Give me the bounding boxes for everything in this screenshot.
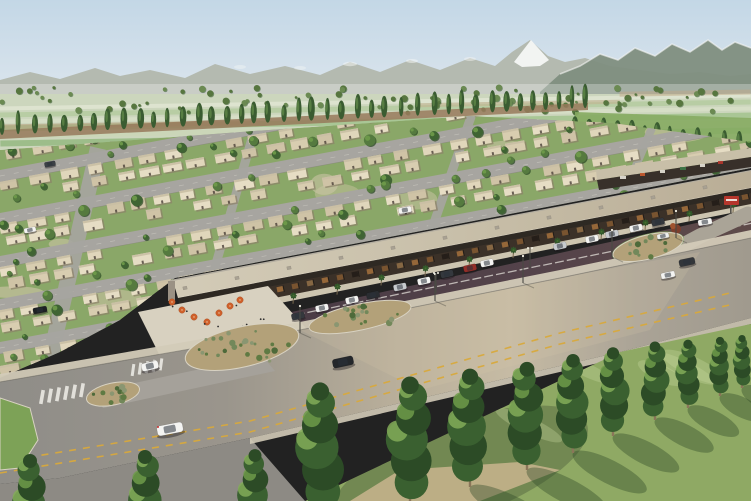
aerial-rendering: Aerial rendering of a desert master-plan… [0,0,751,501]
scene-canvas [0,0,751,501]
strip-end-wall [168,281,175,301]
